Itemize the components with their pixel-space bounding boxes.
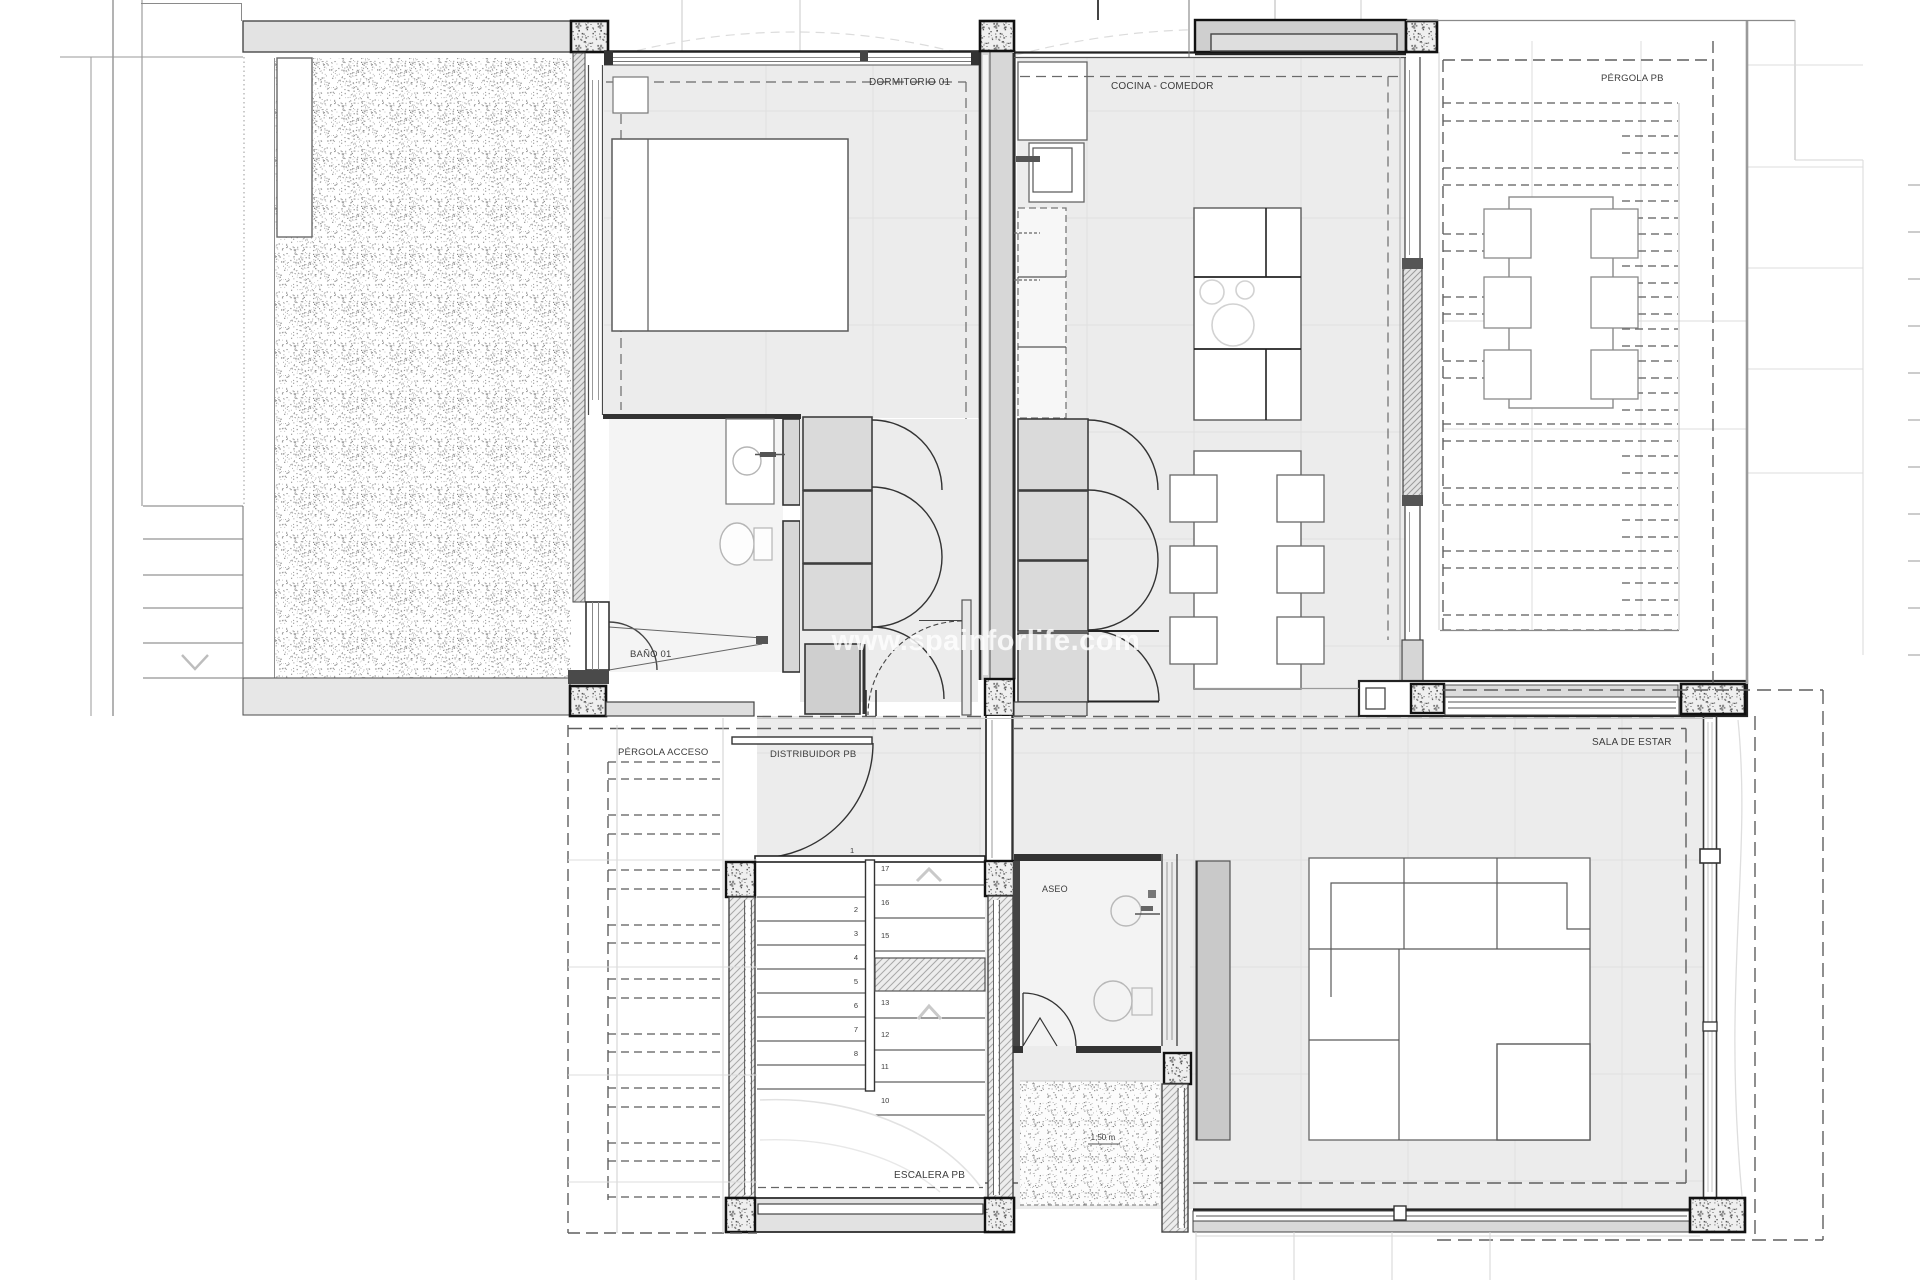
svg-text:10: 10 [881,1096,889,1105]
svg-text:17: 17 [881,864,889,873]
svg-text:6: 6 [854,1001,858,1010]
svg-text:PÉRGOLA PB: PÉRGOLA PB [1601,73,1664,84]
svg-text:11: 11 [881,1062,889,1071]
svg-text:13: 13 [881,998,889,1007]
svg-text:-1,50 m: -1,50 m [1088,1133,1115,1142]
svg-text:ESCALERA PB: ESCALERA PB [894,1170,965,1181]
svg-text:12: 12 [881,1030,889,1039]
svg-text:1: 1 [850,846,854,855]
svg-text:ASEO: ASEO [1042,884,1068,894]
svg-text:7: 7 [854,1025,858,1034]
svg-text:16: 16 [881,898,889,907]
svg-text:15: 15 [881,931,889,940]
svg-text:5: 5 [854,977,858,986]
svg-text:DISTRIBUIDOR PB: DISTRIBUIDOR PB [770,749,856,760]
svg-text:DORMITORIO 01: DORMITORIO 01 [869,77,951,88]
svg-text:BAÑO 01: BAÑO 01 [630,649,672,660]
svg-text:COCINA - COMEDOR: COCINA - COMEDOR [1111,81,1214,92]
svg-text:4: 4 [854,953,858,962]
svg-text:2: 2 [854,905,858,914]
svg-text:PÉRGOLA ACCESO: PÉRGOLA ACCESO [618,747,708,758]
svg-text:www.spainforlife.com: www.spainforlife.com [831,625,1141,657]
svg-text:8: 8 [854,1049,858,1058]
svg-text:3: 3 [854,929,858,938]
svg-text:SALA DE ESTAR: SALA DE ESTAR [1592,737,1672,748]
